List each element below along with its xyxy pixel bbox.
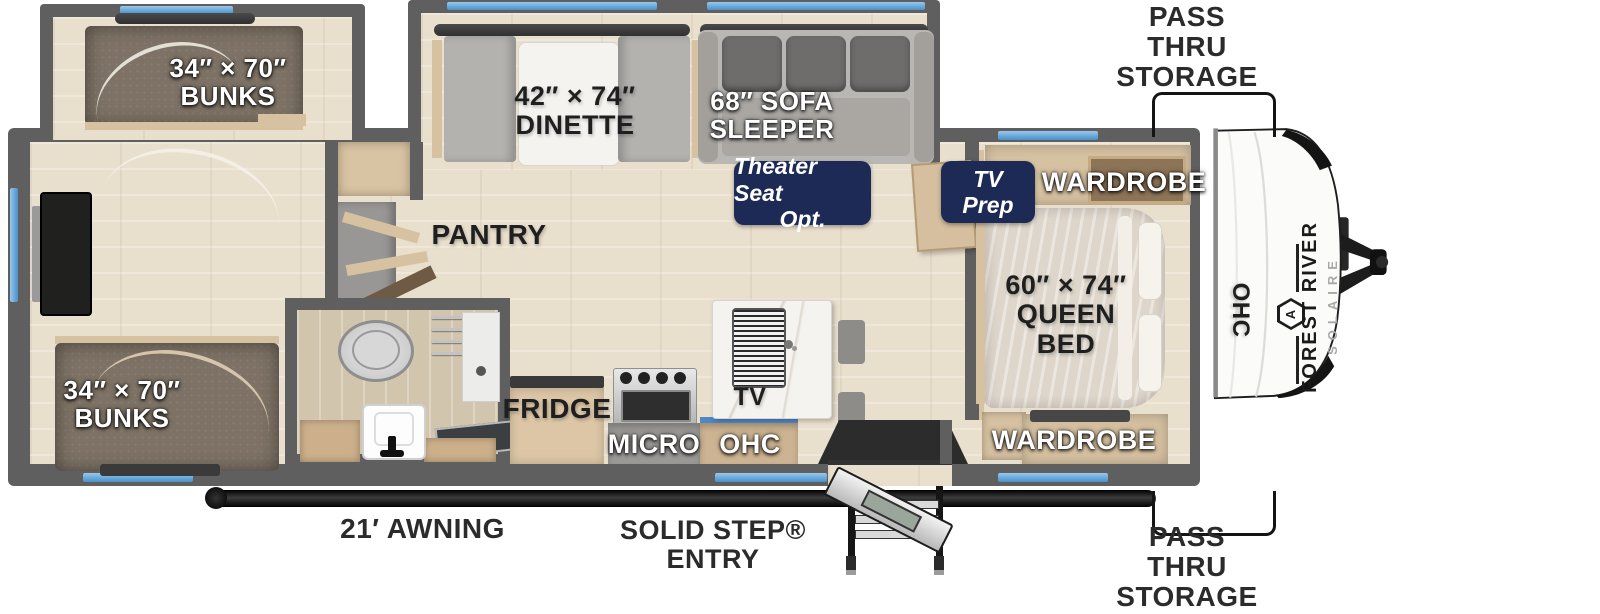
awning-text: 21′ AWNING (340, 514, 505, 544)
solid-step-label: SOLID STEP® ENTRY (613, 514, 813, 576)
wardrobe-bottom-label: WARDROBE (995, 427, 1153, 455)
bottom-window-right (998, 473, 1108, 482)
ohc-bedroom-text: OHC (1227, 283, 1253, 338)
pantry-wall (325, 142, 338, 310)
bath-vanity (300, 420, 360, 462)
pantry-text: PANTRY (432, 220, 547, 250)
bedroom-top-window (998, 131, 1098, 140)
pass-thru-bottom-line2: STORAGE (1116, 582, 1257, 612)
island-sink (732, 308, 786, 388)
cap-body-seam (1213, 128, 1218, 397)
theater-badge-line2: Opt. (780, 206, 826, 232)
dinette-window (447, 2, 657, 10)
sofa-line1: 68″ SOFA (710, 87, 833, 115)
pass-thru-bottom-label: PASS THRU STORAGE (1106, 534, 1268, 600)
bunks-bottom-name: BUNKS (75, 404, 170, 432)
wardrobe-bottom-counter (1030, 410, 1130, 422)
tv-prep-badge: TV Prep (941, 161, 1035, 223)
bath-faucet-handle (380, 450, 404, 457)
ohc-kitchen-label: OHC (704, 430, 796, 460)
hitch-ball-handle (1376, 256, 1388, 268)
sofa-label: 68″ SOFA SLEEPER (688, 84, 856, 146)
bedroom-entry-stub-wall (940, 420, 952, 464)
floorplan-diagram: A FOREST RIVER SOLAIRE 34″ × 70″ BUNKS 3… (0, 0, 1600, 614)
bunks-top-name: BUNKS (181, 82, 276, 110)
sofa-cushion-3 (850, 36, 910, 92)
brand-wordmark: FOREST RIVER (1298, 192, 1322, 422)
stove-burner-2 (638, 372, 650, 384)
pantry-label: PANTRY (430, 220, 548, 250)
solid-step-line1: SOLID STEP® (620, 516, 806, 545)
stove-burner-4 (674, 372, 686, 384)
micro-text: MICRO (608, 430, 701, 459)
island-faucet (784, 340, 793, 349)
closet-wall (410, 142, 423, 200)
bottom-window-center (715, 473, 827, 482)
awning-bar (212, 490, 1156, 507)
queen-bed-line2: QUEEN (1017, 300, 1116, 329)
rear-wall-window (10, 188, 18, 302)
bunks-top-size: 34″ × 70″ (170, 54, 287, 82)
dinette-trim-left (432, 40, 442, 158)
oven-window (621, 390, 691, 422)
dinette-label: 42″ × 74″ DINETTE (460, 80, 690, 142)
wardrobe-top-text: WARDROBE (1042, 168, 1207, 197)
tv-prep-line1: TV (973, 166, 1002, 192)
bunk-curtain-rod (115, 13, 255, 24)
step-foot-right (934, 556, 944, 575)
awning-label: 21′ AWNING (330, 513, 515, 545)
pass-thru-top-line1: PASS THRU (1106, 2, 1268, 62)
tv-island-label: TV (722, 384, 778, 410)
brand-model-text: SOLAIRE (1325, 255, 1340, 355)
queen-bed-label: 60″ × 74″ QUEEN BED (985, 268, 1147, 362)
stove-burner-1 (620, 372, 632, 384)
fridge-label: FRIDGE (505, 394, 609, 424)
awning-bar-endcap (205, 487, 227, 509)
sofa-line2: SLEEPER (710, 115, 835, 143)
bath-cabinet (424, 438, 496, 462)
rear-tv-screen (40, 192, 92, 316)
pass-thru-bottom-line1: PASS THRU (1106, 522, 1268, 582)
tv-prep-line2: Prep (962, 192, 1013, 218)
brand-name-text: FOREST RIVER (1299, 221, 1322, 393)
bunks-bottom-label: 34″ × 70″ BUNKS (38, 372, 206, 436)
bed-rail (976, 212, 985, 404)
entry-threshold (828, 460, 952, 465)
pass-thru-bracket-top (1152, 92, 1276, 137)
brand-model: SOLAIRE (1324, 210, 1340, 400)
ohc-bedroom-label: OHC (1212, 282, 1268, 338)
sofa-window (707, 2, 925, 10)
step-foot-left (846, 556, 856, 575)
wardrobe-top-label: WARDROBE (1040, 168, 1208, 198)
theater-badge-line1: Theater Seat (734, 153, 871, 206)
tv-island-text: TV (734, 384, 767, 411)
brand-monogram: A (1283, 309, 1298, 318)
micro-label: MICRO (606, 430, 702, 460)
toilet-lid (352, 330, 400, 370)
queen-bed-line3: BED (1037, 330, 1096, 359)
pass-thru-top-label: PASS THRU STORAGE (1106, 14, 1268, 80)
shower-head-icon (476, 366, 486, 376)
shower-wall (462, 312, 500, 402)
fridge-text: FRIDGE (503, 394, 612, 424)
solid-step-line2: ENTRY (666, 545, 759, 574)
pass-thru-top-line2: STORAGE (1116, 62, 1257, 92)
closet-top (338, 142, 410, 196)
bunks-bottom-size: 34″ × 70″ (64, 376, 181, 404)
dinette-name: DINETTE (515, 111, 634, 140)
sofa-arm-right (914, 32, 934, 162)
theater-seat-badge: Theater Seat Opt. (734, 161, 871, 225)
ohc-kitchen-text: OHC (719, 430, 781, 459)
island-stool-1 (838, 320, 865, 364)
stove-burner-3 (656, 372, 668, 384)
dinette-valance (434, 24, 690, 36)
queen-bed-size: 60″ × 74″ (1005, 271, 1126, 300)
bunk-bottom-base (100, 464, 220, 476)
fridge-counter-top (510, 376, 604, 388)
wardrobe-bottom-text: WARDROBE (992, 426, 1157, 455)
bunks-top-label: 34″ × 70″ BUNKS (128, 45, 328, 119)
dinette-size: 42″ × 74″ (514, 82, 635, 111)
